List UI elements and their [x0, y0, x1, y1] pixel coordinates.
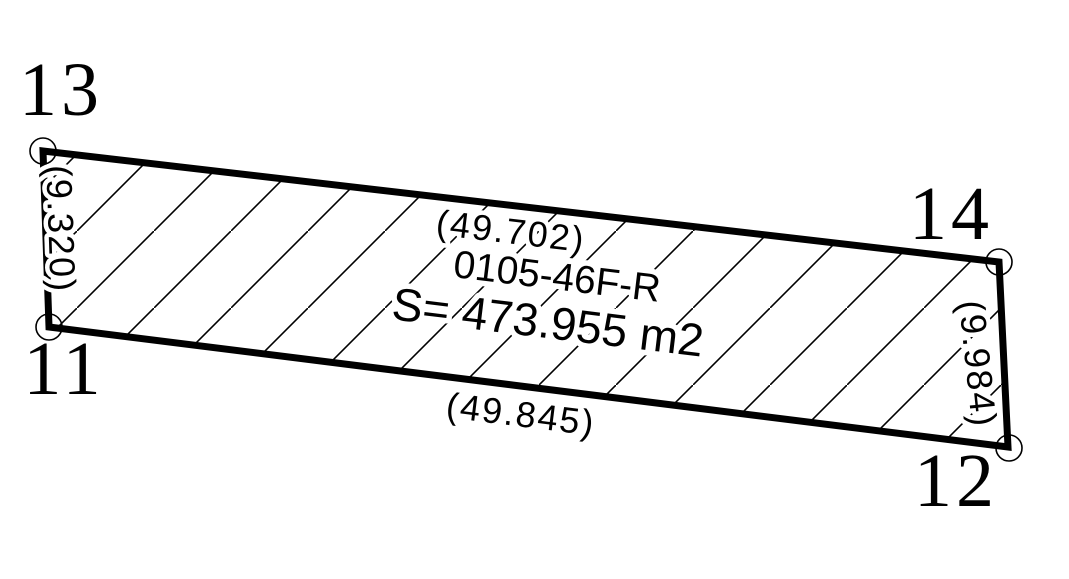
corner-label-12: 12 — [914, 439, 998, 523]
corner-label-11: 11 — [23, 327, 104, 411]
survey-plan-svg: 13 14 11 12 (49.702) (49.845) (9.320) (9… — [0, 0, 1069, 579]
corner-label-13: 13 — [19, 48, 103, 132]
survey-plan-canvas: 13 14 11 12 (49.702) (49.845) (9.320) (9… — [0, 0, 1069, 579]
corner-label-14: 14 — [909, 172, 993, 256]
dimension-label-left: (9.320) — [38, 164, 83, 293]
